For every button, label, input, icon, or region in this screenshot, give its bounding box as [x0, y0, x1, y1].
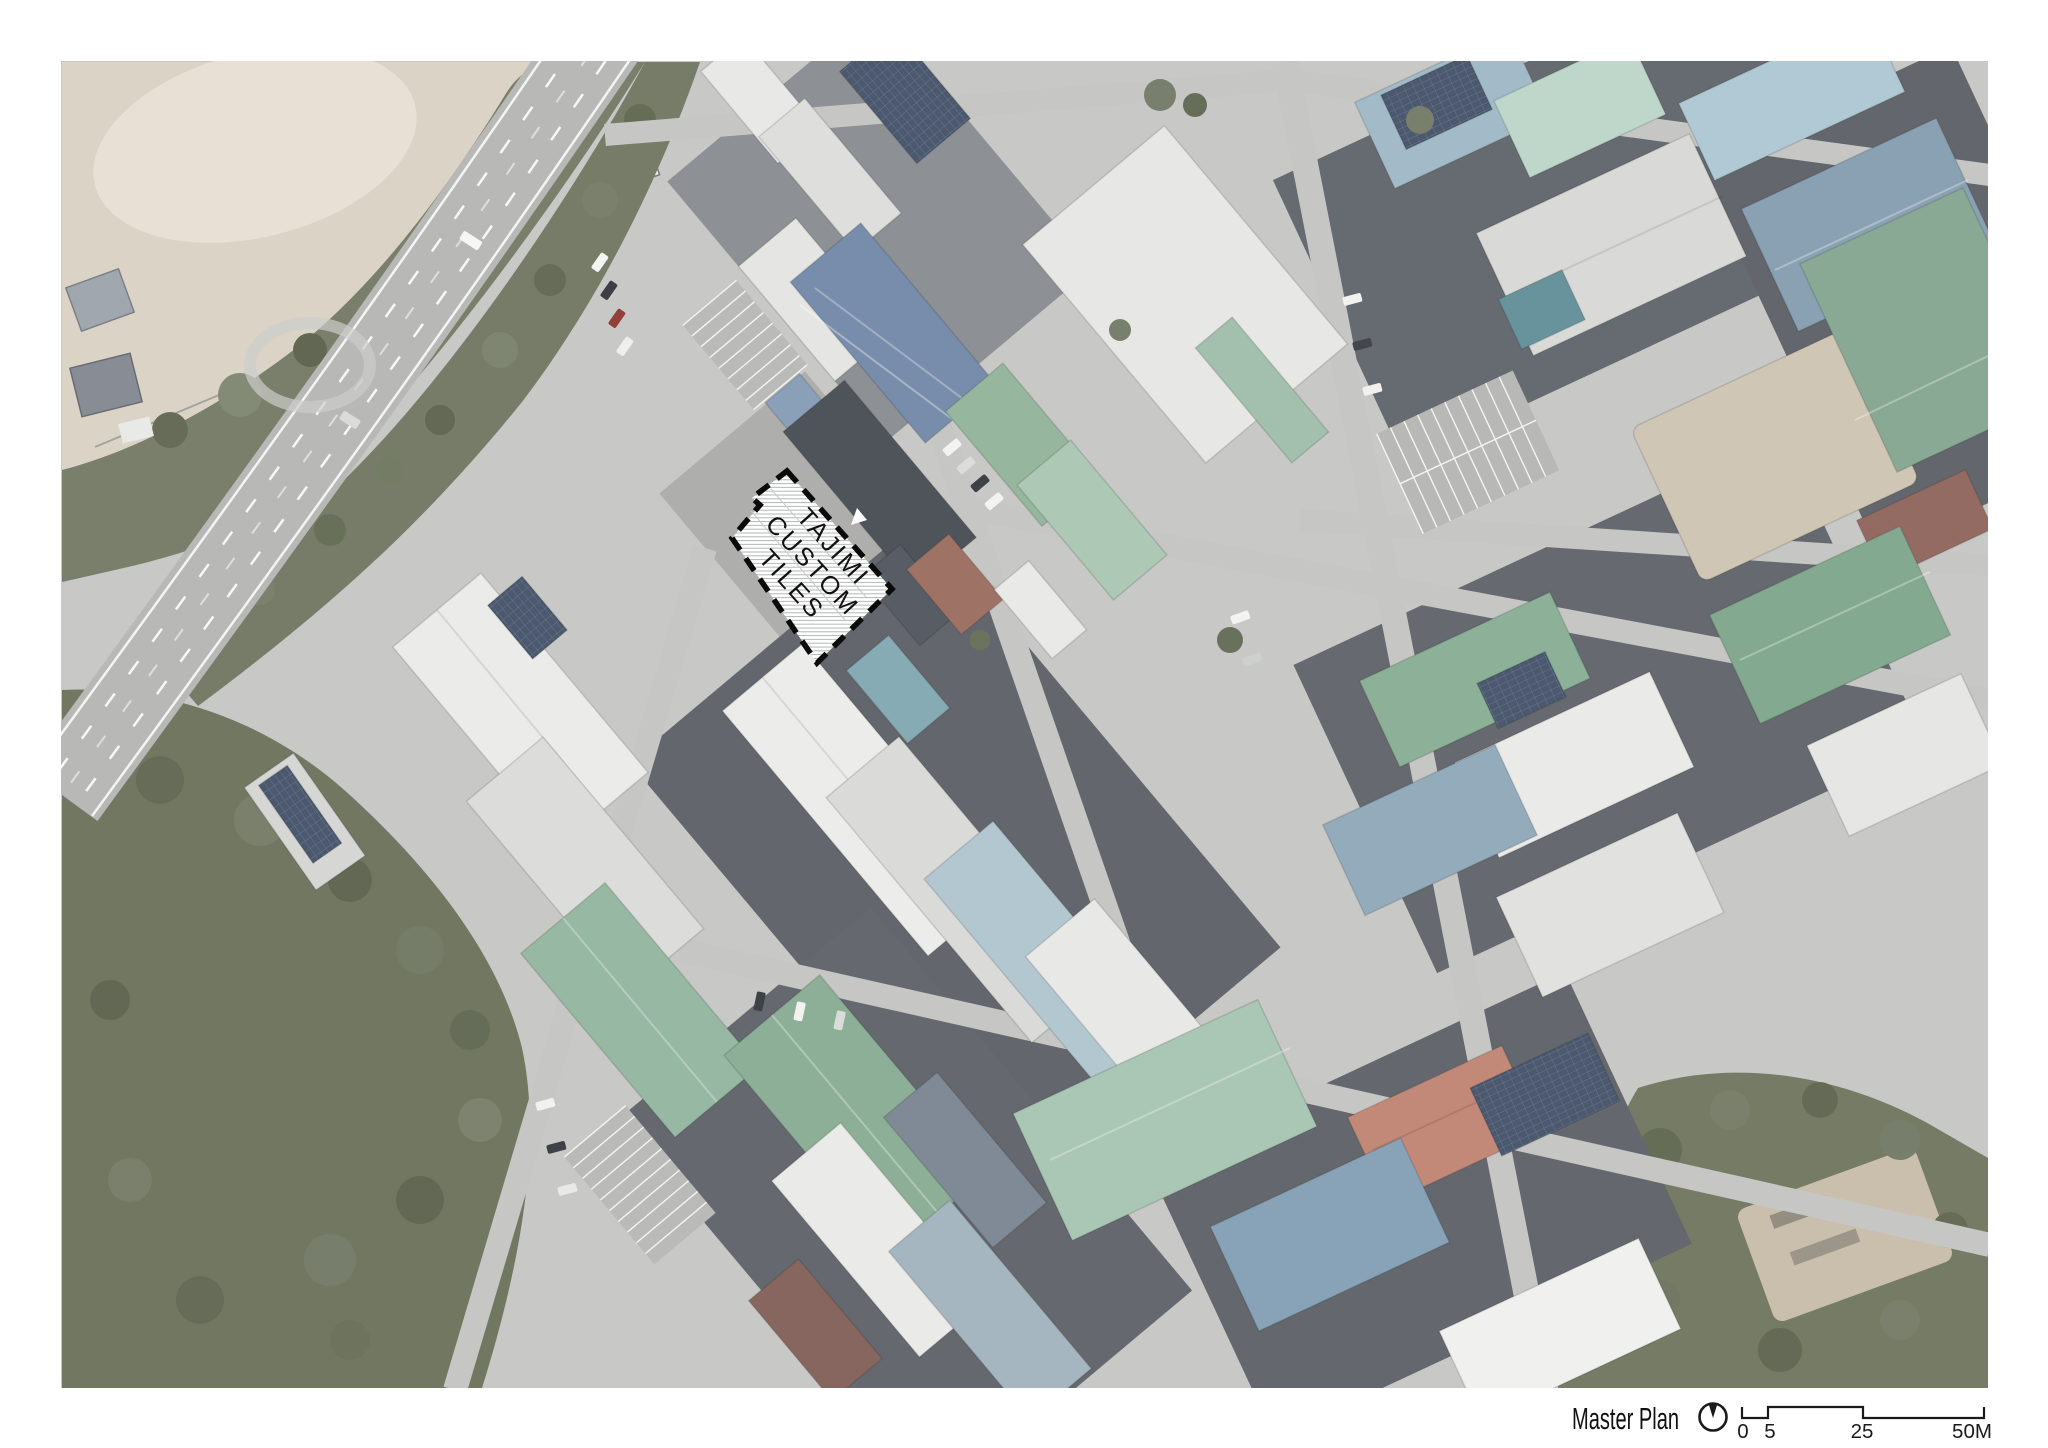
scale-label-5: 5: [1764, 1420, 1775, 1443]
scale-label-25: 25: [1851, 1420, 1874, 1443]
legend-title: Master Plan: [1572, 1401, 1679, 1436]
master-plan-sheet: TAJIMI CUSTOM TILES Master Plan 0 5 25 5…: [0, 0, 2048, 1448]
aerial-photo: TAJIMI CUSTOM TILES: [32, 0, 2048, 1448]
scale-label-0: 0: [1737, 1420, 1748, 1443]
photo-wash: [61, 61, 1988, 1388]
scale-label-50m: 50M: [1952, 1420, 1992, 1443]
